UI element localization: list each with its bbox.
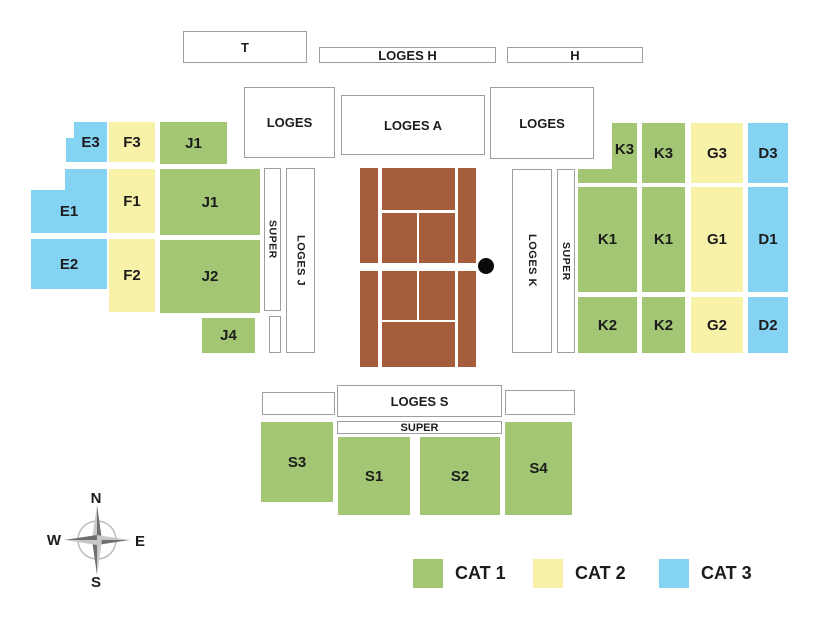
stand-box-loges-h[interactable]: LOGES H (319, 47, 496, 63)
strip-loges-j[interactable]: LOGES J (286, 168, 315, 353)
stand-box-h[interactable]: H (507, 47, 643, 63)
strip-super-west-lower[interactable] (269, 316, 281, 353)
box-south-west[interactable] (262, 392, 335, 415)
block-e2[interactable]: E2 (31, 239, 107, 289)
compass-east-label: E (130, 533, 150, 550)
block-g1[interactable]: G1 (691, 187, 743, 292)
legend-label: CAT 1 (455, 559, 506, 588)
strip-label: SUPER (267, 220, 279, 259)
block-g3[interactable]: G3 (691, 123, 743, 183)
block-k1-inner[interactable]: K1 (642, 187, 685, 292)
block-k1-outer[interactable]: K1 (578, 187, 637, 292)
loges-box-a[interactable]: LOGES A (341, 95, 485, 155)
stand-box-t[interactable]: T (183, 31, 307, 63)
court-service-box-bottom-left (382, 271, 417, 320)
legend-item-cat1: CAT 1 (413, 559, 506, 588)
block-d1[interactable]: D1 (748, 187, 788, 292)
compass-south-label: S (86, 574, 106, 591)
block-label: E1 (31, 190, 107, 233)
court-alley-left-bottom (360, 271, 378, 367)
strip-super-west[interactable]: SUPER (264, 168, 281, 311)
block-k2-inner[interactable]: K2 (642, 297, 685, 353)
block-f1[interactable]: F1 (109, 169, 155, 233)
strip-label: LOGES K (526, 234, 538, 287)
legend-label: CAT 3 (701, 559, 752, 588)
court-alley-right-bottom (458, 271, 476, 367)
strip-label: LOGES J (295, 235, 307, 286)
tennis-court (360, 168, 476, 367)
block-label: K3 (612, 123, 637, 175)
court-backcourt-top (382, 168, 455, 210)
block-j1-upper[interactable]: J1 (160, 122, 227, 164)
seating-map: T LOGES H H LOGES LOGES A LOGES E3 F3 J1… (0, 0, 820, 620)
court-service-box-bottom-right (419, 271, 455, 320)
legend-swatch-cat2 (533, 559, 563, 588)
block-label: E3 (74, 122, 107, 162)
loges-box-east[interactable]: LOGES (490, 87, 594, 159)
ball-marker-icon (478, 258, 494, 274)
legend-item-cat2: CAT 2 (533, 559, 626, 588)
block-j2[interactable]: J2 (160, 240, 260, 313)
compass-rose-icon (52, 495, 142, 585)
compass-west-label: W (44, 532, 64, 549)
loges-box-west[interactable]: LOGES (244, 87, 335, 158)
block-s1[interactable]: S1 (338, 437, 410, 515)
legend-swatch-cat3 (659, 559, 689, 588)
box-south-east[interactable] (505, 390, 575, 415)
block-s4[interactable]: S4 (505, 422, 572, 515)
strip-loges-k[interactable]: LOGES K (512, 169, 552, 353)
block-f2[interactable]: F2 (109, 239, 155, 312)
block-s3[interactable]: S3 (261, 422, 333, 502)
block-g2[interactable]: G2 (691, 297, 743, 353)
strip-super-south[interactable]: SUPER (337, 421, 502, 434)
loges-box-s[interactable]: LOGES S (337, 385, 502, 417)
block-j1-lower[interactable]: J1 (160, 169, 260, 235)
court-backcourt-bottom (382, 322, 455, 367)
compass-north-label: N (86, 490, 106, 507)
legend-swatch-cat1 (413, 559, 443, 588)
block-e3[interactable]: E3 (66, 122, 107, 162)
block-e1[interactable]: E1 (31, 169, 107, 233)
block-k2-outer[interactable]: K2 (578, 297, 637, 353)
block-d2[interactable]: D2 (748, 297, 788, 353)
legend-label: CAT 2 (575, 559, 626, 588)
court-alley-left-top (360, 168, 378, 263)
strip-super-east[interactable]: SUPER (557, 169, 575, 353)
court-alley-right-top (458, 168, 476, 263)
legend-item-cat3: CAT 3 (659, 559, 752, 588)
court-service-box-top-left (382, 213, 417, 263)
block-f3[interactable]: F3 (109, 122, 155, 162)
block-k3-inner[interactable]: K3 (642, 123, 685, 183)
block-d3[interactable]: D3 (748, 123, 788, 183)
strip-label: SUPER (560, 242, 572, 281)
court-service-box-top-right (419, 213, 455, 263)
block-s2[interactable]: S2 (420, 437, 500, 515)
block-j4[interactable]: J4 (202, 318, 255, 353)
